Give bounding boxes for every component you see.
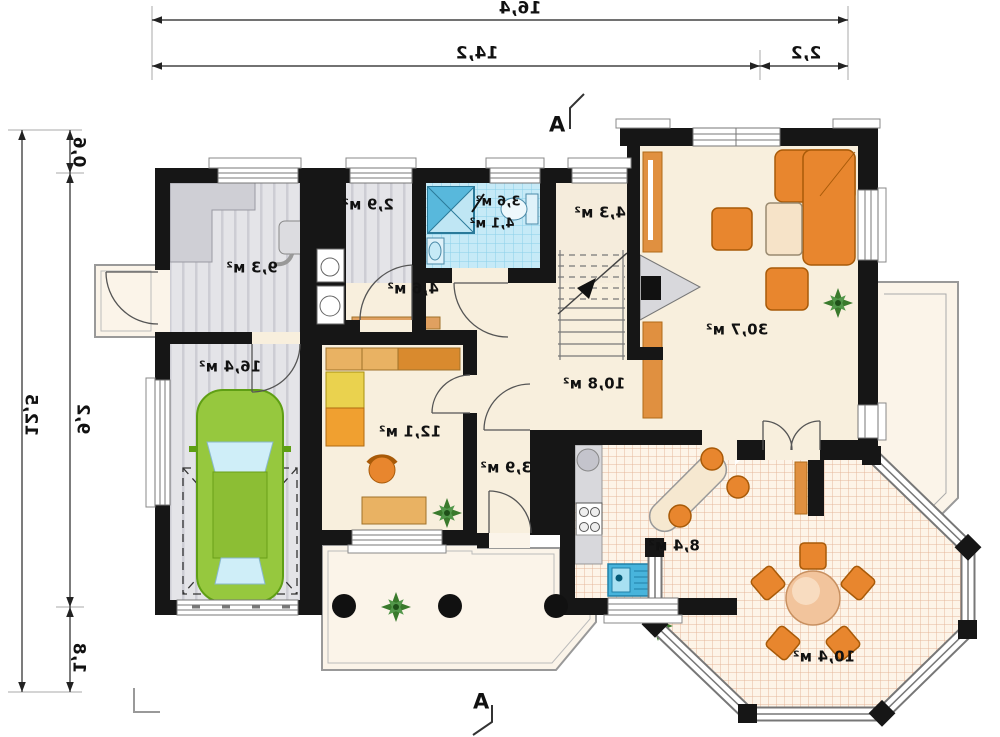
room-label-corridor: 3,9 м² xyxy=(480,461,532,476)
downspout-mark xyxy=(134,688,160,712)
floor-plan-page: 9,3 м² 2,9 м² 3,6 м² 4,1 м² 4,3 м² 4,6 м… xyxy=(0,0,1000,737)
dim-left-mid: 9,2 xyxy=(74,404,91,435)
room-label-wc: 2,9 м² xyxy=(342,198,394,213)
room-label-bath-b: 4,1 м² xyxy=(469,218,514,231)
room-label-hall: 10,8 м² xyxy=(563,377,625,392)
floor-plan-drawing xyxy=(0,0,1000,737)
passage-cabinet xyxy=(795,462,807,514)
room-label-garage: 16,4 м² xyxy=(199,360,261,375)
section-marker-bottom: A xyxy=(473,692,489,713)
dim-left-total: 12,5 xyxy=(22,394,39,437)
room-label-living: 30,7 м² xyxy=(706,323,768,338)
room-label-bath-a: 3,6 м² xyxy=(475,196,520,209)
dim-top-side: 2,2 xyxy=(791,46,822,63)
room-label-office: 12,1 м² xyxy=(379,425,441,440)
room-label-dining: 10,4 м² xyxy=(793,650,855,665)
entrance-porch xyxy=(95,265,157,337)
room-label-kitchen: 8,4 м² xyxy=(648,539,700,554)
room-label-entry-hall: 4,6 м² xyxy=(387,282,439,297)
dim-left-top: 0,6 xyxy=(70,137,87,168)
garage-car xyxy=(183,390,297,602)
section-marker-top: A xyxy=(549,115,565,136)
room-label-stair-hall: 4,3 м² xyxy=(574,206,626,221)
dim-top-total: 16,4 xyxy=(499,1,542,18)
laundry-appliances xyxy=(317,249,344,324)
room-label-utility: 9,3 м² xyxy=(226,261,278,276)
dim-top-main: 14,2 xyxy=(456,46,499,63)
dim-left-bottom: 1,8 xyxy=(70,643,87,674)
